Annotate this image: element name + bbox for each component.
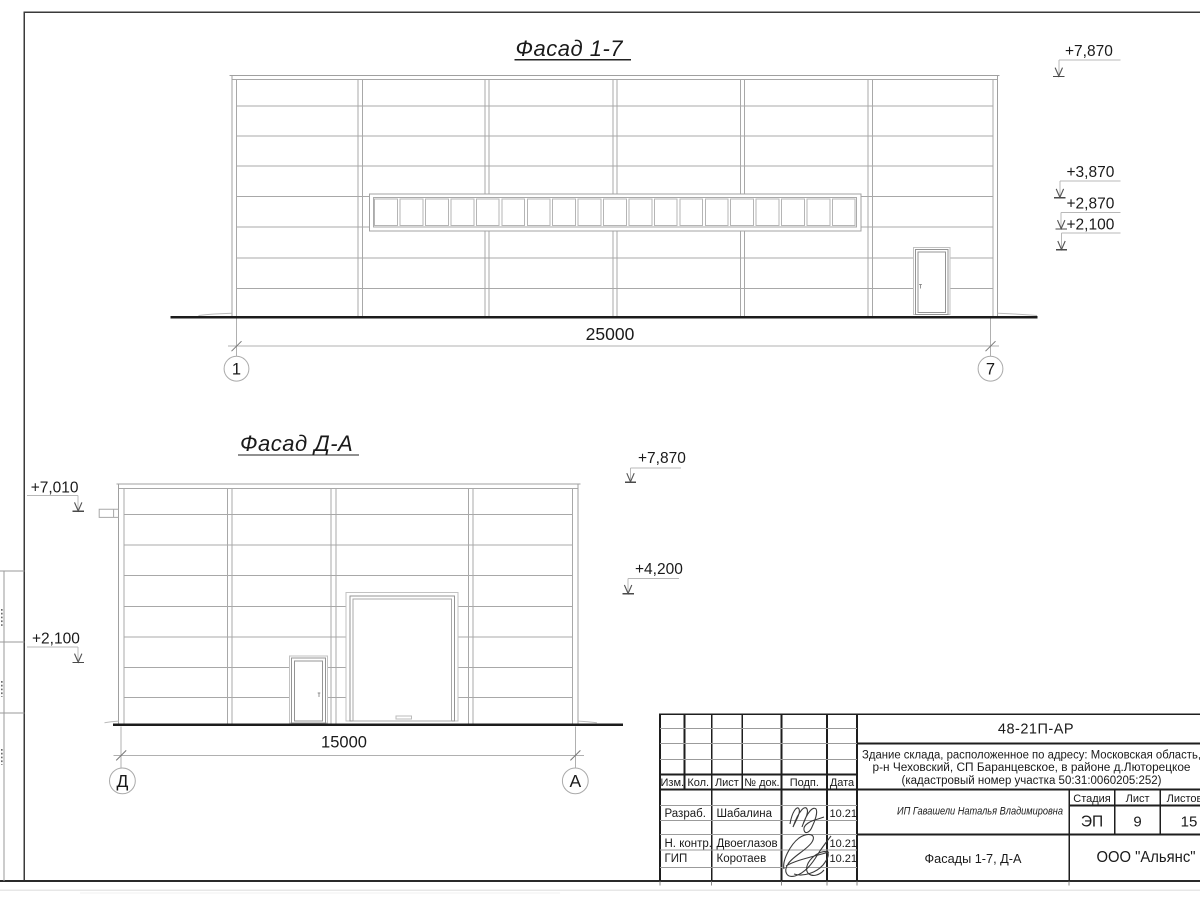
svg-text:Д: Д: [116, 771, 128, 791]
svg-text:+7,870: +7,870: [638, 450, 686, 467]
svg-text:+7,870: +7,870: [1065, 43, 1113, 60]
svg-text:+2,100: +2,100: [32, 630, 80, 647]
svg-text:№ док.: № док.: [744, 777, 779, 789]
svg-text:15: 15: [1181, 814, 1198, 831]
svg-text:+2,100: +2,100: [1067, 216, 1115, 233]
svg-text:ООО "Альянс": ООО "Альянс": [1097, 849, 1196, 866]
svg-text:15000: 15000: [321, 733, 367, 751]
svg-text:Фасады 1-7, Д-А: Фасады 1-7, Д-А: [925, 852, 1023, 866]
svg-text:7: 7: [986, 361, 995, 379]
svg-text:Лист: Лист: [1126, 793, 1150, 805]
svg-text:Листов: Листов: [1167, 793, 1200, 805]
svg-text:+3,870: +3,870: [1067, 164, 1115, 181]
svg-text:Н. контр.: Н. контр.: [665, 838, 712, 850]
svg-text:А: А: [569, 771, 581, 791]
svg-text:Двоеглазов: Двоеглазов: [717, 838, 778, 850]
svg-text:9: 9: [1133, 814, 1141, 831]
svg-text:25000: 25000: [586, 324, 635, 344]
svg-text:р-н Чеховский, СП Баранцевское: р-н Чеховский, СП Баранцевское, в районе…: [873, 762, 1191, 774]
svg-text:Фасад 1-7: Фасад 1-7: [516, 36, 624, 61]
svg-text:10.21: 10.21: [830, 808, 858, 820]
svg-text:ЭП: ЭП: [1081, 814, 1103, 831]
svg-text:48-21П-АР: 48-21П-АР: [998, 721, 1074, 737]
svg-text:+4,200: +4,200: [635, 561, 683, 578]
svg-text:Разраб.: Разраб.: [665, 808, 706, 820]
svg-text:Фасад Д-А: Фасад Д-А: [240, 431, 353, 456]
svg-text:Кол.: Кол.: [687, 777, 709, 789]
svg-text:(кадастровый номер участка 50:: (кадастровый номер участка 50:31:0060205…: [902, 775, 1162, 787]
svg-text:Дата: Дата: [830, 777, 855, 789]
svg-text:ИП Гавашели Наталья Владимиров: ИП Гавашели Наталья Владимировна: [897, 806, 1063, 818]
svg-text:Коротаев: Коротаев: [717, 853, 767, 865]
svg-text:+7,010: +7,010: [31, 480, 79, 497]
svg-text:Подп.: Подп.: [790, 777, 819, 789]
svg-text:Здание склада, расположенное п: Здание склада, расположенное по адресу: …: [862, 749, 1200, 761]
svg-text:10.21: 10.21: [830, 853, 858, 865]
svg-text:Шабалина: Шабалина: [717, 808, 773, 820]
svg-text:Стадия: Стадия: [1073, 793, 1111, 805]
svg-text:ГИП: ГИП: [665, 853, 688, 865]
svg-text:Лист: Лист: [715, 777, 739, 789]
svg-text:10.21: 10.21: [830, 838, 858, 850]
svg-text:1: 1: [232, 361, 241, 379]
svg-text:Изм.: Изм.: [661, 777, 685, 789]
svg-text:+2,870: +2,870: [1067, 195, 1115, 212]
